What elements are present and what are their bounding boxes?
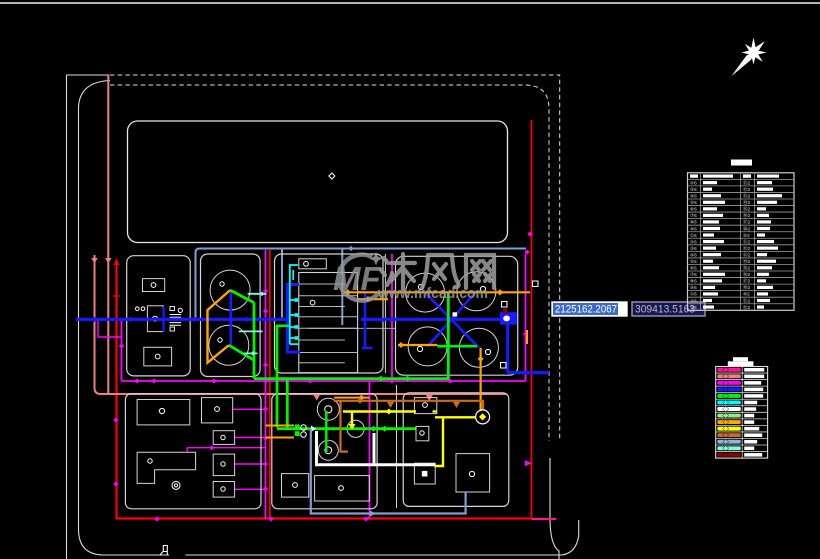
svg-text:⑱2: ⑱2	[743, 284, 751, 291]
svg-text:⑩2: ⑩2	[743, 292, 750, 297]
svg-text:⑯2: ⑯2	[743, 271, 751, 278]
svg-text:2125162.2067: 2125162.2067	[555, 304, 617, 316]
svg-text:⑨6: ⑨6	[690, 285, 697, 290]
svg-text:⑦6: ⑦6	[690, 213, 697, 218]
svg-text:⑫2: ⑫2	[743, 304, 751, 311]
svg-text:②6: ②6	[690, 180, 697, 185]
svg-text:⑤6: ⑤6	[690, 259, 697, 264]
svg-text:④6: ④6	[690, 194, 697, 199]
svg-text:⑫2: ⑫2	[743, 186, 751, 193]
svg-text:⑭2: ⑭2	[743, 199, 751, 206]
svg-text:⑬2: ⑬2	[743, 251, 751, 258]
svg-text:④6: ④6	[690, 252, 697, 257]
svg-text:⑨6: ⑨6	[690, 226, 697, 231]
svg-text:①6: ①6	[690, 233, 697, 238]
svg-text:⑥6: ⑥6	[690, 266, 697, 271]
svg-text:⑬2: ⑬2	[743, 193, 751, 200]
svg-text:②6: ②6	[690, 298, 697, 303]
svg-text:⑰2: ⑰2	[743, 219, 751, 226]
svg-text:②6: ②6	[690, 239, 697, 244]
svg-text:⑪2: ⑪2	[743, 238, 751, 245]
svg-text:⑧6: ⑧6	[690, 279, 697, 284]
svg-text:www.mfcad.com: www.mfcad.com	[377, 285, 488, 302]
svg-text:⑭2: ⑭2	[743, 258, 751, 265]
svg-text:⑪2: ⑪2	[743, 179, 751, 186]
svg-text:③6: ③6	[690, 187, 697, 192]
svg-text:⑥6: ⑥6	[690, 207, 697, 212]
svg-text:⑤6: ⑤6	[690, 200, 697, 205]
svg-text:⑮2: ⑮2	[743, 265, 751, 272]
svg-text:MF: MF	[333, 260, 381, 297]
svg-text:①6: ①6	[690, 292, 697, 297]
svg-text:③6: ③6	[690, 246, 697, 251]
svg-text:⑪2: ⑪2	[743, 297, 751, 304]
svg-text:309413.5163: 309413.5163	[635, 304, 695, 316]
svg-text:⑮2: ⑮2	[743, 206, 751, 213]
svg-text:⑯2: ⑯2	[743, 212, 751, 219]
svg-text:⑫2: ⑫2	[743, 245, 751, 252]
svg-text:③6: ③6	[690, 305, 697, 310]
svg-text:⑰2: ⑰2	[743, 278, 751, 285]
svg-text:⑱2: ⑱2	[743, 225, 751, 232]
svg-text:⑩2: ⑩2	[743, 233, 750, 238]
svg-text:⑦6: ⑦6	[690, 272, 697, 277]
svg-text:⑧6: ⑧6	[690, 220, 697, 225]
